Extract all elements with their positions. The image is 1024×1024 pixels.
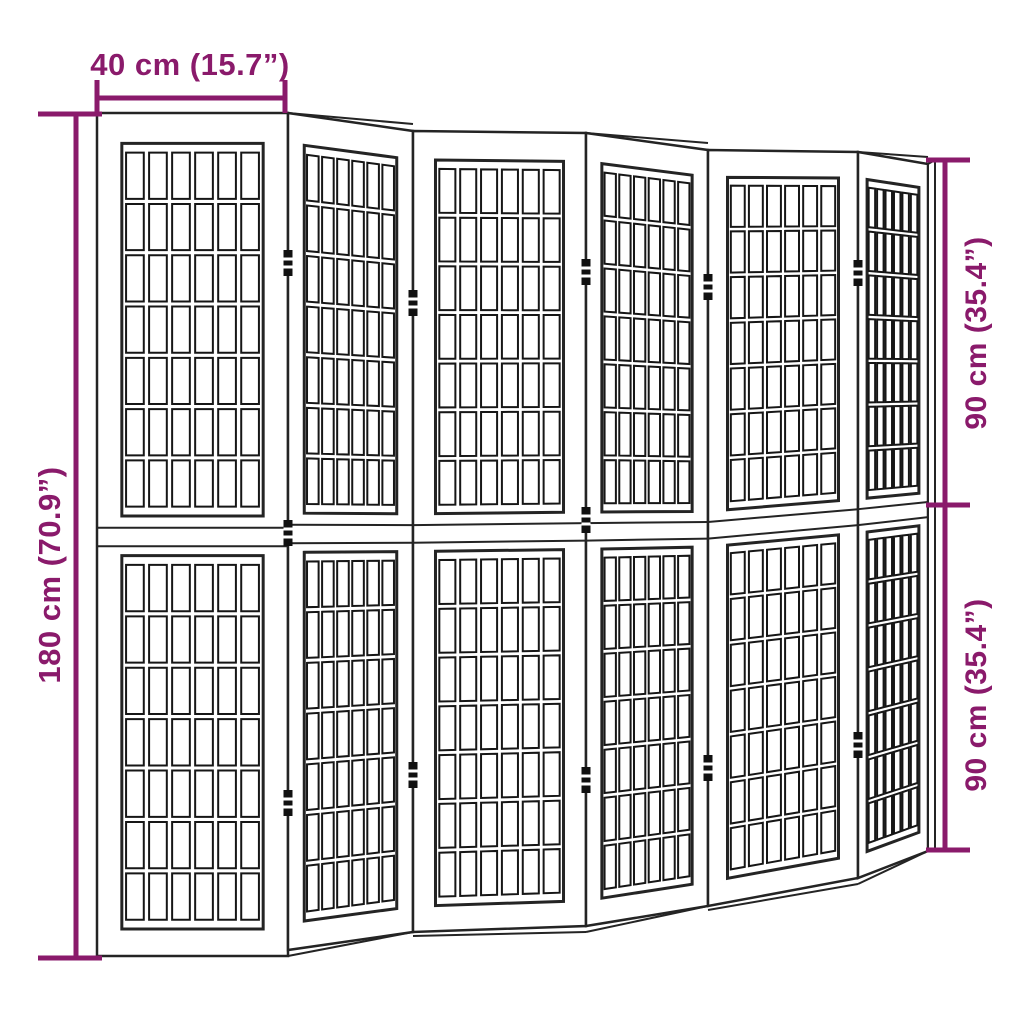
product-dimension-diagram: 40 cm (15.7”) 180 cm (70.9”) 90 cm (35.4… [0, 0, 1024, 1024]
hinge-icon [704, 274, 713, 300]
hinge-icon [284, 790, 293, 816]
hinge-icon [854, 732, 863, 758]
hinge-icon [284, 520, 293, 546]
hinge-icon [409, 290, 418, 316]
hinge-icon [582, 259, 591, 285]
figure-canvas [0, 0, 1024, 1024]
lower-half-dimension-label: 90 cm (35.4”) [958, 495, 996, 895]
hinge-icon [582, 767, 591, 793]
height-dimension-label: 180 cm (70.9”) [31, 355, 69, 795]
width-dimension-label: 40 cm (15.7”) [40, 46, 340, 84]
hinge-icon [704, 755, 713, 781]
upper-half-dimension-label: 90 cm (35.4”) [958, 133, 996, 533]
hinge-icon [854, 260, 863, 286]
hinge-icon [284, 250, 293, 276]
hinge-icon [582, 507, 591, 533]
room-divider-figure [0, 0, 1024, 1024]
hinge-icon [409, 762, 418, 788]
